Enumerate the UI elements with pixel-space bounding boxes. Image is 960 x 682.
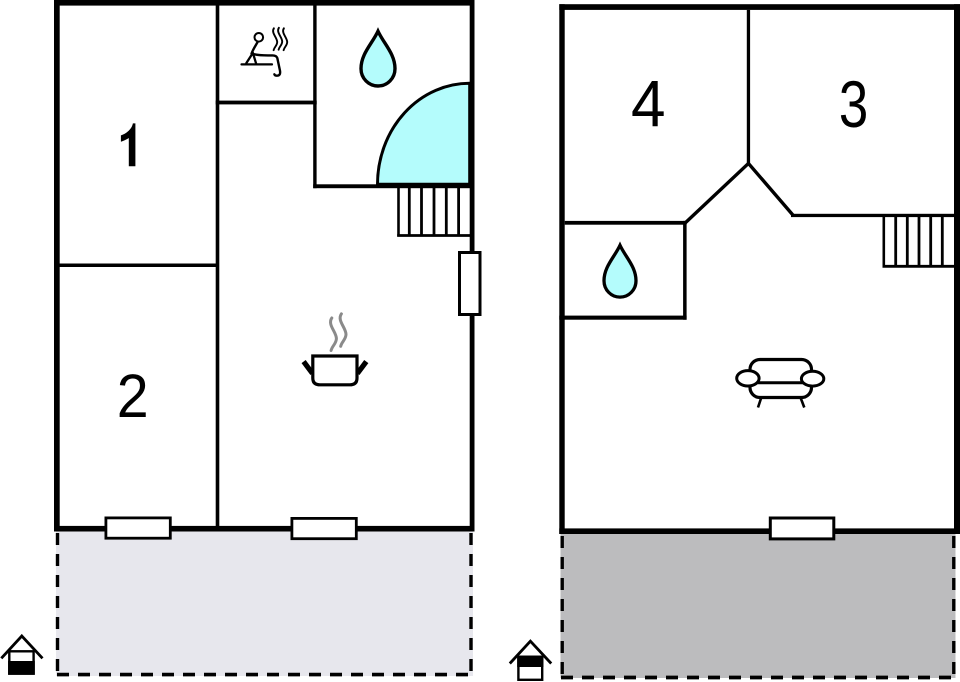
svg-text:3: 3 xyxy=(839,67,868,141)
svg-text:4: 4 xyxy=(631,67,666,141)
svg-text:2: 2 xyxy=(117,362,149,431)
